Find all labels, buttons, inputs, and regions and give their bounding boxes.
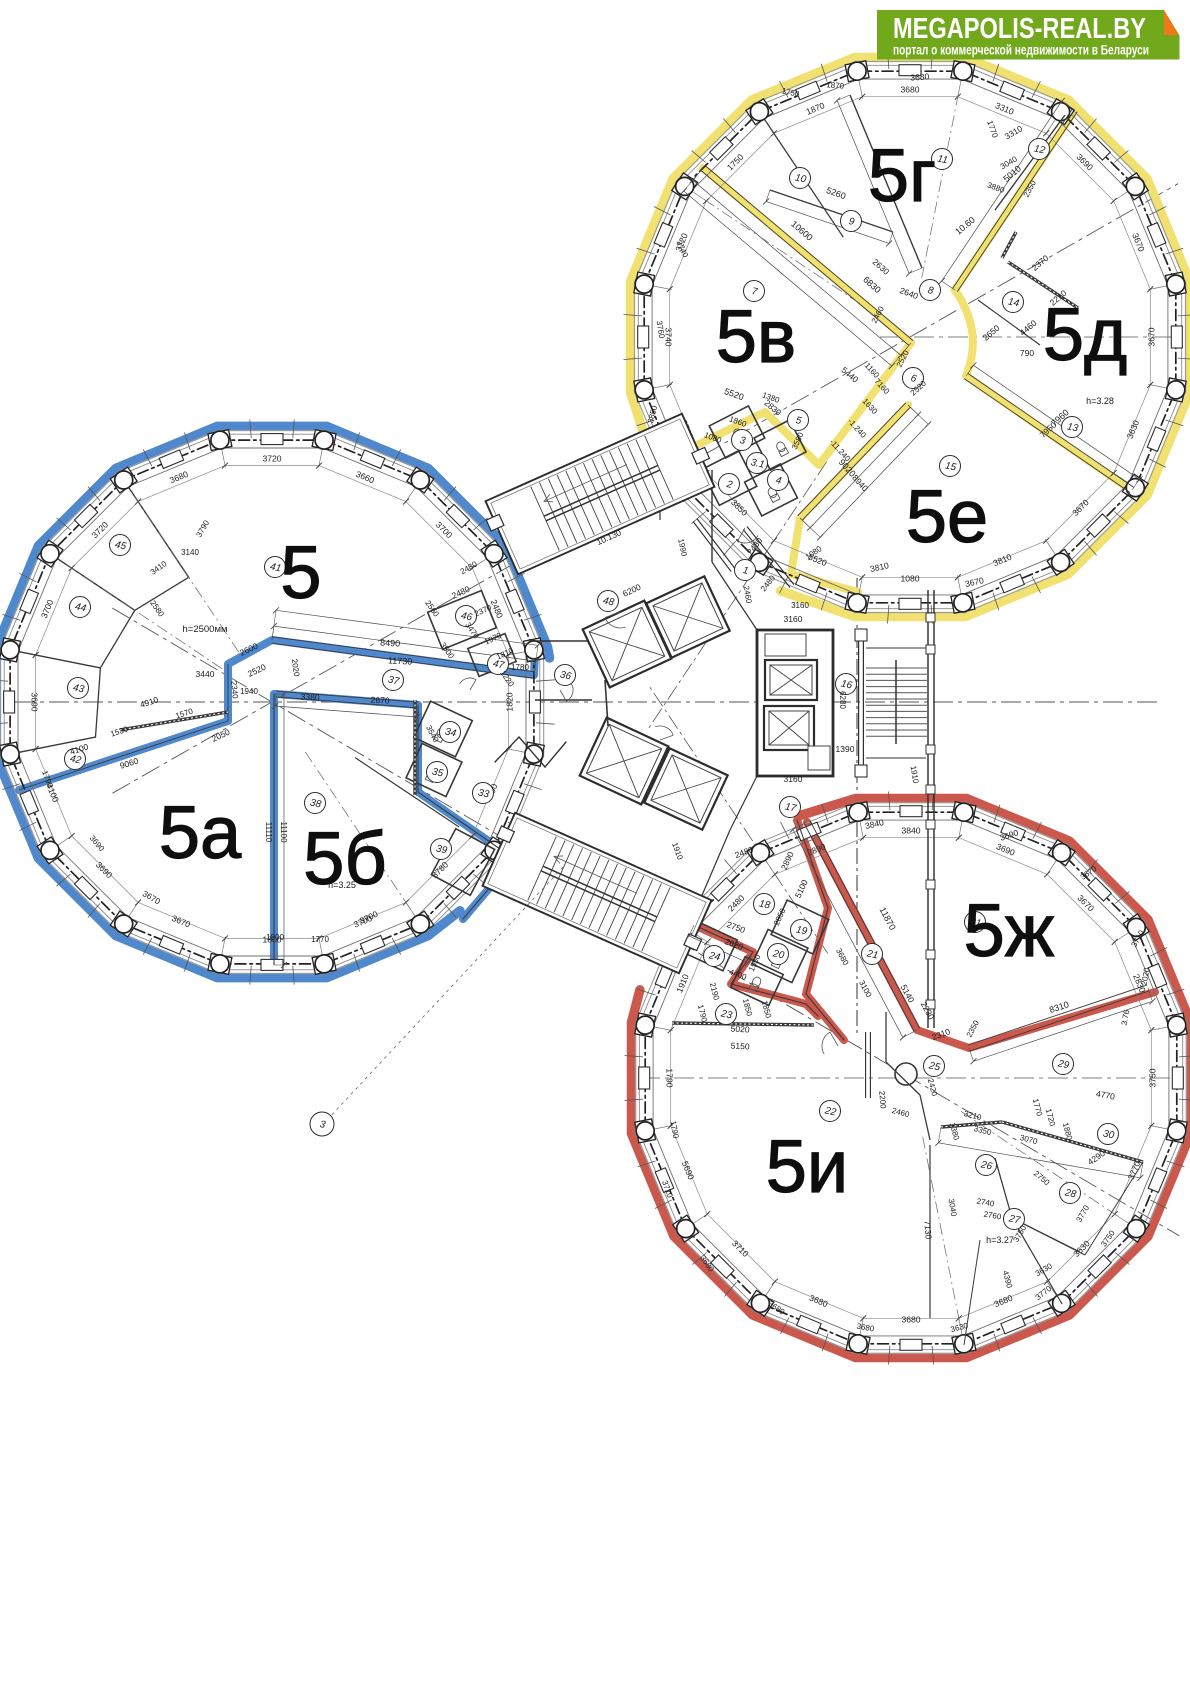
svg-text:2670: 2670 xyxy=(370,695,390,706)
svg-text:7130: 7130 xyxy=(922,1220,934,1240)
svg-text:5д: 5д xyxy=(1043,293,1127,376)
svg-text:3440: 3440 xyxy=(196,669,215,679)
svg-text:1790: 1790 xyxy=(665,1068,675,1087)
svg-text:6280: 6280 xyxy=(838,691,847,709)
svg-text:5150: 5150 xyxy=(730,1041,750,1052)
svg-text:1080: 1080 xyxy=(900,573,919,583)
svg-text:3670: 3670 xyxy=(1146,327,1156,346)
svg-text:1770: 1770 xyxy=(311,935,329,944)
svg-text:3680: 3680 xyxy=(901,1314,920,1324)
svg-text:11110: 11110 xyxy=(264,822,273,843)
svg-text:1780: 1780 xyxy=(511,663,529,672)
svg-text:8490: 8490 xyxy=(380,637,401,648)
svg-text:3160: 3160 xyxy=(784,774,803,784)
svg-text:3160: 3160 xyxy=(784,614,803,624)
svg-text:5: 5 xyxy=(280,531,321,614)
svg-text:h=2500мм: h=2500мм xyxy=(182,624,227,635)
svg-text:3160: 3160 xyxy=(791,601,809,610)
svg-text:3840: 3840 xyxy=(901,826,920,836)
svg-text:1870: 1870 xyxy=(826,80,845,91)
svg-text:3680: 3680 xyxy=(910,71,930,82)
svg-text:3140: 3140 xyxy=(181,548,199,557)
svg-text:5е: 5е xyxy=(906,475,988,558)
svg-text:1800: 1800 xyxy=(266,933,284,942)
svg-text:h=3.27: h=3.27 xyxy=(986,1235,1014,1245)
svg-text:5020: 5020 xyxy=(730,1024,750,1035)
svg-text:11: 11 xyxy=(936,153,948,166)
svg-text:5и: 5и xyxy=(766,1125,849,1208)
svg-text:5ж: 5ж xyxy=(964,889,1055,972)
svg-text:790: 790 xyxy=(1020,348,1034,358)
svg-text:MEGAPOLIS-REAL.BY: MEGAPOLIS-REAL.BY xyxy=(893,13,1146,45)
svg-text:5в: 5в xyxy=(716,295,796,378)
svg-text:2200: 2200 xyxy=(877,1091,888,1110)
svg-text:3380: 3380 xyxy=(300,692,320,703)
svg-text:3690: 3690 xyxy=(30,692,40,711)
svg-text:3720: 3720 xyxy=(262,454,281,464)
svg-text:2340: 2340 xyxy=(229,681,240,700)
svg-text:3750: 3750 xyxy=(1147,1068,1157,1087)
svg-text:5г: 5г xyxy=(868,134,936,217)
svg-text:11730: 11730 xyxy=(388,655,413,666)
svg-text:1820: 1820 xyxy=(504,692,514,711)
svg-text:h=3.28: h=3.28 xyxy=(1086,396,1114,406)
svg-text:5б: 5б xyxy=(303,817,387,900)
svg-text:3680: 3680 xyxy=(900,85,919,95)
svg-text:5а: 5а xyxy=(159,791,242,874)
svg-text:портал о коммерческой недвижим: портал о коммерческой недвижимости в Бел… xyxy=(893,43,1149,58)
svg-text:1940: 1940 xyxy=(240,687,258,696)
svg-text:11100: 11100 xyxy=(279,821,288,843)
svg-text:1390: 1390 xyxy=(836,744,855,754)
